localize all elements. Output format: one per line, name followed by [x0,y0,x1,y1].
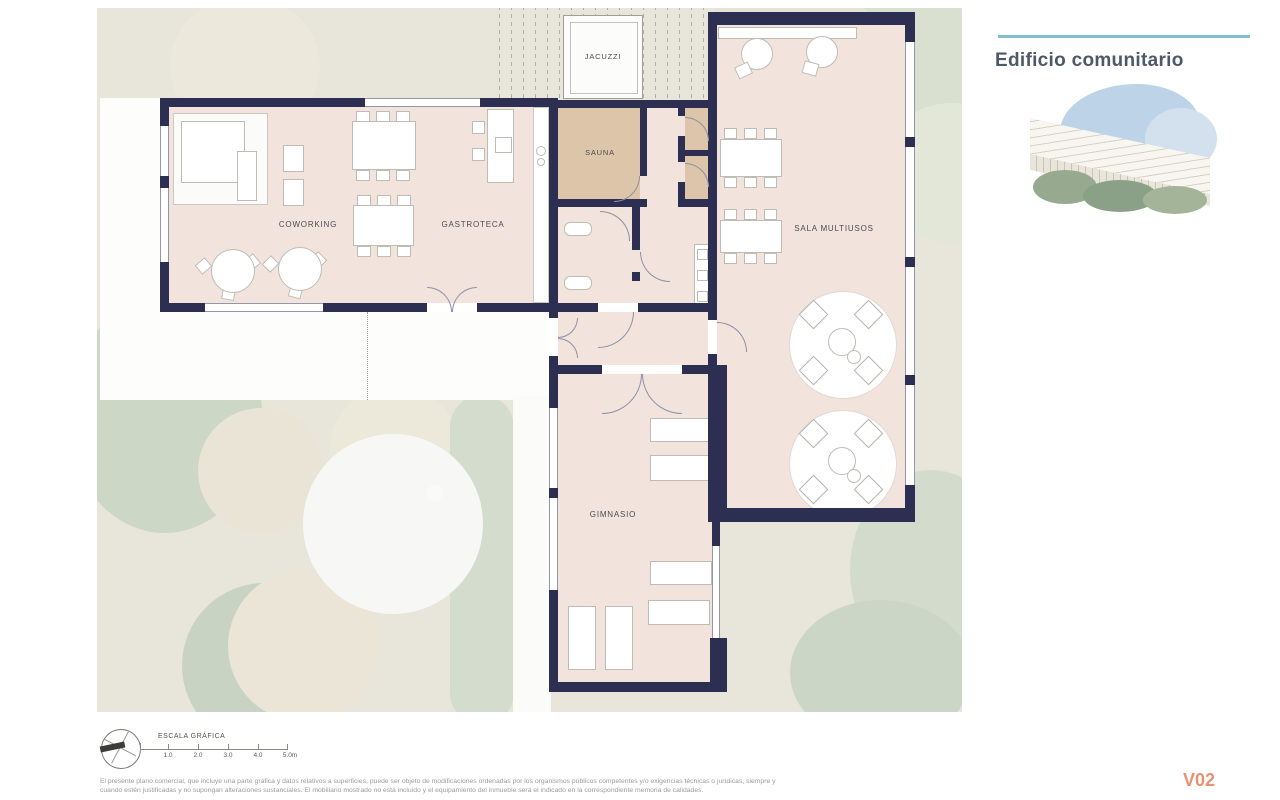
lounge-seating [789,410,897,518]
disclaimer-line: El presente plano comercial, que incluye… [100,778,945,787]
sink-bowl [536,146,546,156]
tick [168,744,169,750]
wall [549,682,727,692]
tree-blob [303,434,483,614]
room-label-gastroteca: GASTROTECA [441,220,504,229]
vegetation [1143,186,1207,214]
lounge-seating [789,291,897,399]
ticklab: 5.0m [283,752,297,759]
ticklab: 1.0 [163,752,172,759]
tick [140,743,141,750]
gym-equipment [650,418,713,442]
lounge-chair [799,356,829,386]
armchair [283,145,304,172]
entrance-hall [554,308,714,368]
ticklab: 4.0 [253,752,262,759]
building-illustration [1025,78,1215,213]
window [365,98,480,107]
kitchen-counter [533,107,549,303]
sink-bowl [537,158,545,166]
version-badge: V02 [1183,770,1215,791]
wall [708,365,727,522]
door-gap [678,162,685,182]
lounge-chair [854,300,884,330]
chair [744,128,757,139]
wall [905,12,915,42]
disclaimer-line: cuando estén justificadas y no supongan … [100,787,945,796]
chair [397,246,411,257]
chair [724,209,737,220]
chair [396,170,410,181]
toilet [564,222,592,236]
ticklab: 2.0 [193,752,202,759]
dining-table [353,205,414,246]
chair [744,209,757,220]
stool [472,148,485,161]
wall [708,12,914,25]
door-gap [708,320,717,354]
gym-equipment [650,455,713,481]
wall [708,12,717,365]
door-gap [678,116,685,136]
chair [724,253,737,264]
terrace [100,312,555,400]
window [905,385,915,485]
scale-bar-title: ESCALA GRÁFICA [158,733,225,740]
tick [228,744,229,750]
chair [724,128,737,139]
room-label-sauna: SAUNA [585,148,615,157]
wall [708,508,914,522]
dining-table [720,220,782,253]
door-gap [632,250,640,272]
window [905,42,915,137]
stool [472,121,485,134]
window [712,546,720,638]
lounge-table [847,350,861,364]
dining-table [720,139,782,177]
wall [905,375,915,385]
chair [376,170,390,181]
window [905,267,915,375]
chair [744,177,757,188]
sink [495,137,512,153]
chair [764,177,777,188]
lounge-chair [854,419,884,449]
ticklab: 3.0 [223,752,232,759]
coffee-table [237,151,257,201]
room-label-gimnasio: GIMNASIO [590,510,636,519]
door-gap [598,303,638,312]
wall [710,638,727,692]
gym-equipment [650,561,712,585]
chair [377,246,391,257]
window [549,408,558,488]
chair [357,246,371,257]
window [205,303,323,312]
chair [764,209,777,220]
gym-equipment [648,600,710,625]
gym-mat [568,606,596,670]
gym-mat [605,606,633,670]
chair [356,170,370,181]
round-table [278,247,322,291]
lounge-chair [799,475,829,505]
garden-path [513,396,551,712]
chair [764,128,777,139]
locker-cell [697,291,708,302]
tree-blob [427,485,443,501]
accent-rule [998,35,1250,38]
tick [198,744,199,750]
tick [287,744,288,750]
room-label-jacuzzi: JACUZZI [585,52,621,61]
locker-cell [697,270,708,281]
door-gap [640,176,647,200]
room-label-sala-multiusos: SALA MULTIUSOS [794,224,874,233]
wall [905,485,915,522]
toilet [564,276,592,290]
round-table [211,249,255,293]
window [549,498,558,590]
wall [160,98,558,107]
terrace-dotted-line [367,312,369,400]
chair [724,177,737,188]
wall [905,137,915,147]
wall [558,100,708,108]
sideboard [718,27,857,39]
tree-blob [790,600,962,712]
sofa-inner [181,121,245,183]
chair [764,253,777,264]
floor-plan-page: JACUZZI SAUNA COWORKING GASTROTECA SALA … [0,0,1280,800]
wall [712,522,720,546]
wall [905,257,915,267]
wall [554,199,647,207]
door-gap [549,318,558,356]
locker-cell [697,249,708,260]
lounge-table [847,469,861,483]
tick [258,744,259,750]
scale-bar-line [140,749,288,750]
page-title: Edificio comunitario [995,50,1184,72]
window [905,147,915,257]
wall [678,199,712,207]
armchair [283,179,304,206]
room-label-coworking: COWORKING [279,220,337,229]
window [160,126,169,176]
disclaimer: El presente plano comercial, que incluye… [100,778,945,795]
window [160,188,169,262]
dining-table [352,121,416,170]
door-gap [602,365,682,374]
chair [744,253,757,264]
